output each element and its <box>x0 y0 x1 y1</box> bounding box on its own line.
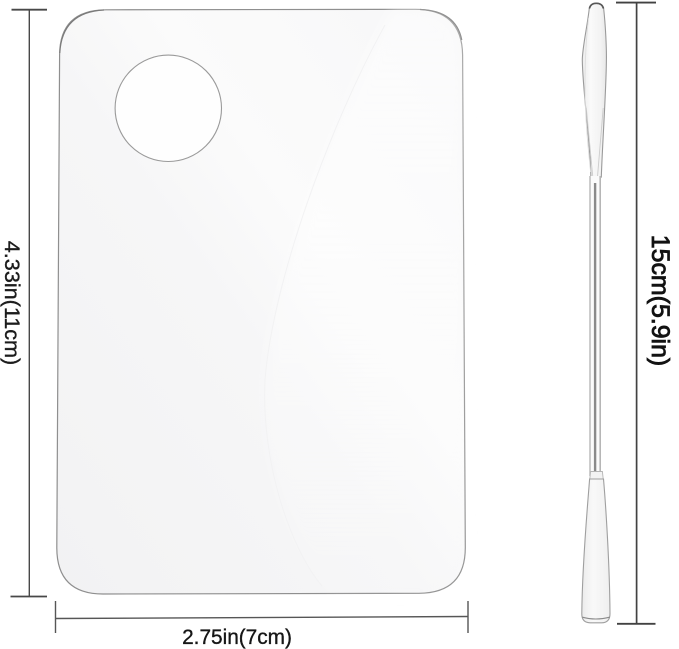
svg-text:4.33in(11cm): 4.33in(11cm) <box>0 241 25 365</box>
svg-text:2.75in(7cm): 2.75in(7cm) <box>182 626 292 649</box>
svg-text:15cm(5.9in): 15cm(5.9in) <box>646 235 674 366</box>
